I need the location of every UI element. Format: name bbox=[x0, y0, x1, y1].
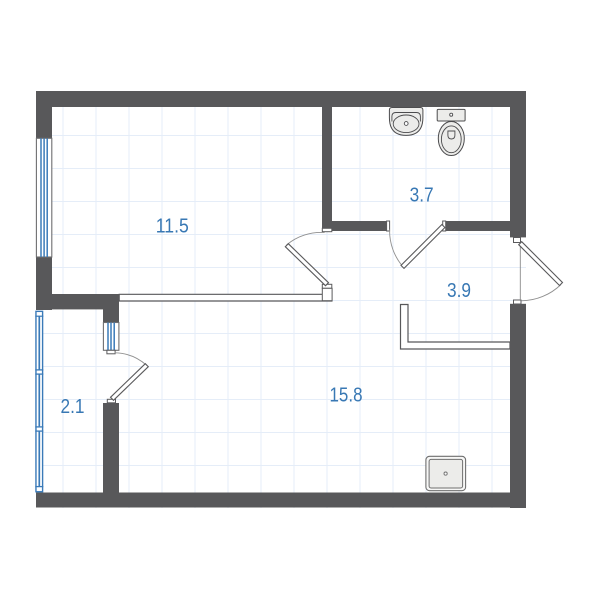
svg-text:3.9: 3.9 bbox=[447, 280, 471, 302]
svg-text:11.5: 11.5 bbox=[156, 215, 189, 237]
svg-text:2.1: 2.1 bbox=[61, 396, 85, 418]
svg-text:3.7: 3.7 bbox=[410, 184, 434, 206]
svg-text:15.8: 15.8 bbox=[330, 385, 363, 407]
